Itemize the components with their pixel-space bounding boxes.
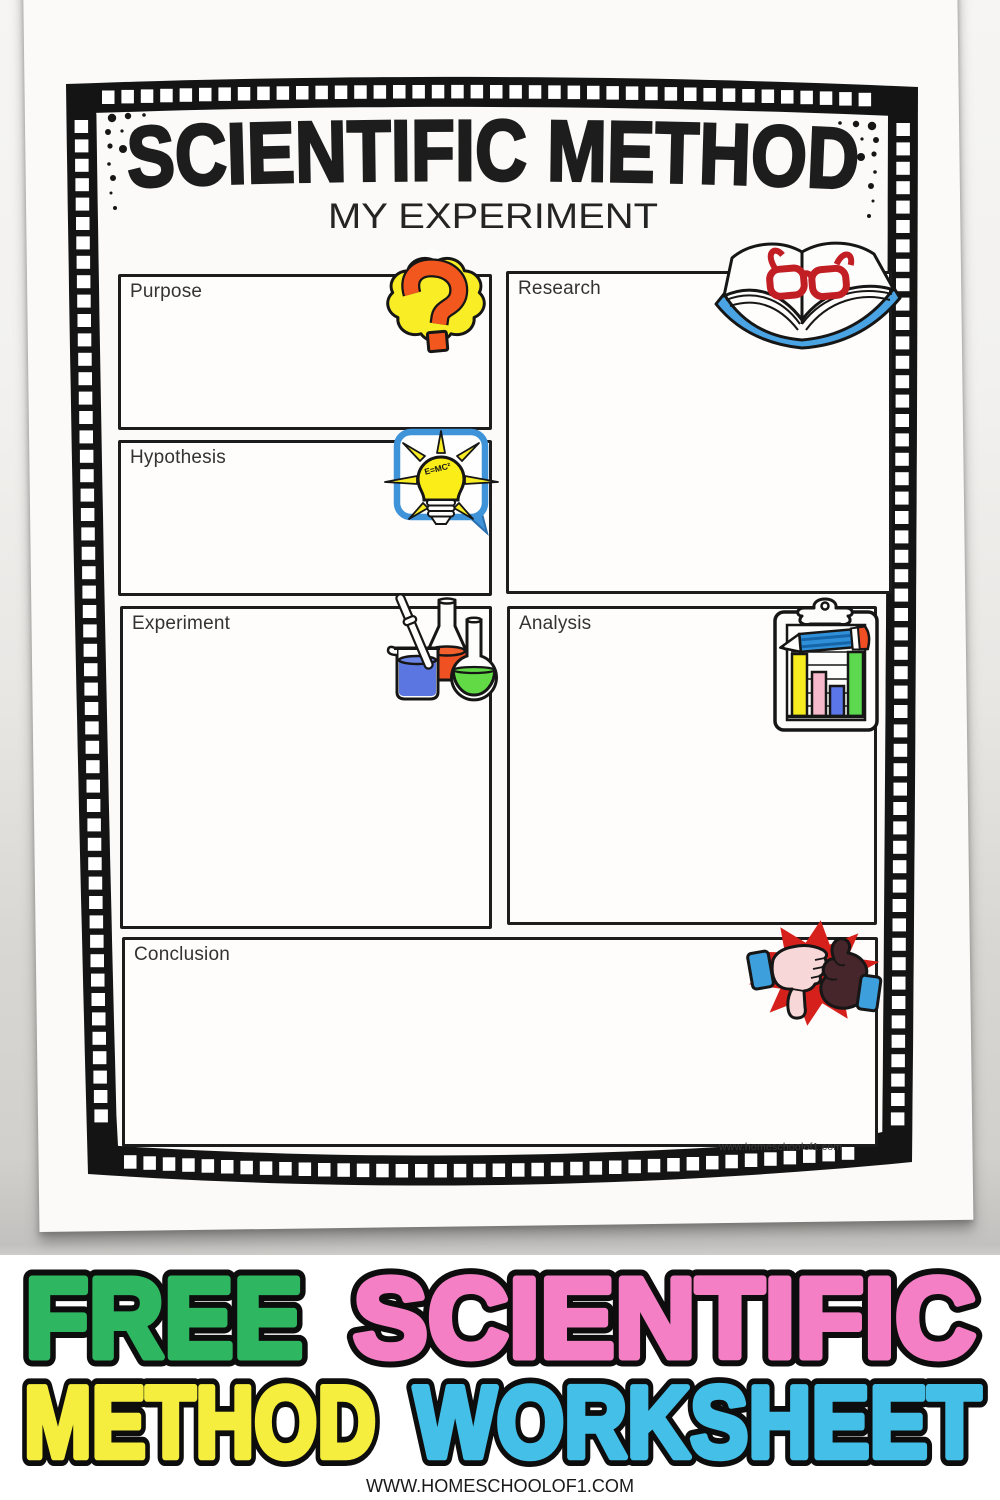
svg-text:SCIENTIFIC: SCIENTIFIC	[353, 1255, 976, 1381]
svg-text:METHOD: METHOD	[24, 1367, 376, 1479]
svg-text:WORKSHEET: WORKSHEET	[414, 1367, 981, 1479]
svg-text:MY EXPERIMENT: MY EXPERIMENT	[328, 197, 658, 236]
svg-text:FREE: FREE	[25, 1255, 303, 1381]
svg-text:WWW.HOMESCHOOLOF1.COM: WWW.HOMESCHOOLOF1.COM	[366, 1476, 634, 1496]
svg-text:SCIENTIFIC METHOD: SCIENTIFIC METHOD	[125, 103, 861, 208]
